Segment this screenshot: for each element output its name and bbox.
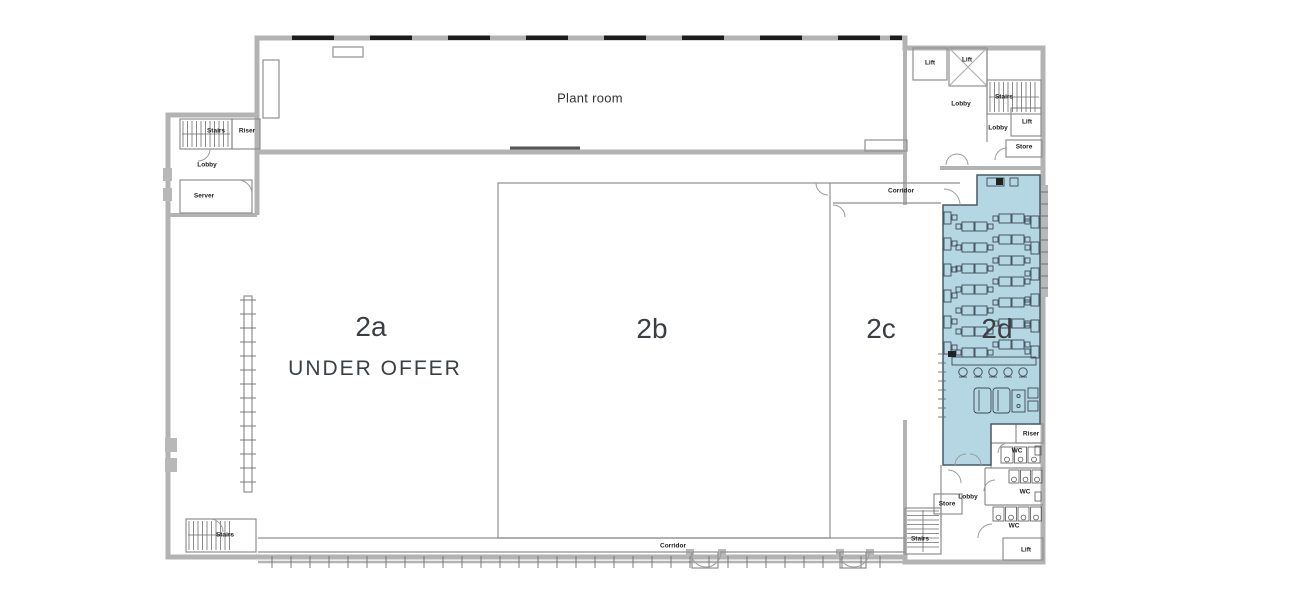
wc-cubicles bbox=[993, 446, 1042, 521]
room-label-stairs: Stairs bbox=[216, 532, 234, 539]
zone-label-2b[interactable]: 2b bbox=[636, 313, 667, 345]
room-label-lift: Lift bbox=[962, 57, 972, 64]
room-label-wc: WC bbox=[1020, 489, 1031, 496]
room-label-lobby: Lobby bbox=[958, 494, 978, 501]
floorplan-page: 2aUNDER OFFER2b2c2dStairsRiserLobbyServe… bbox=[0, 0, 1300, 600]
suite-2b-outline bbox=[498, 183, 830, 538]
room-label-riser: Riser bbox=[1023, 431, 1039, 438]
zone-label-2c[interactable]: 2c bbox=[866, 313, 896, 345]
room-label-store: Store bbox=[1016, 144, 1033, 151]
room-label-lift: Lift bbox=[1021, 547, 1031, 554]
room-label-lift: Lift bbox=[925, 60, 935, 67]
room-label-wc: WC bbox=[1009, 523, 1020, 530]
lift2-cross bbox=[949, 48, 987, 86]
zone-sublabel-2a: UNDER OFFER bbox=[288, 357, 462, 381]
window-strip-2a bbox=[244, 296, 252, 492]
room-label-store: Store bbox=[939, 501, 956, 508]
room-label-stairs: Stairs bbox=[911, 536, 929, 543]
room-label-stairs: Stairs bbox=[207, 128, 225, 135]
floorplan-canvas bbox=[0, 0, 1300, 600]
server-room bbox=[180, 180, 252, 213]
zone-label-2d[interactable]: 2d bbox=[981, 313, 1012, 345]
room-label-lobby: Lobby bbox=[951, 101, 971, 108]
corridor-bottom-walls bbox=[258, 538, 905, 552]
room-label-lobby: Lobby bbox=[197, 162, 217, 169]
room-label-corridor: Corridor bbox=[888, 188, 914, 195]
room-label-stairs: Stairs bbox=[995, 94, 1013, 101]
room-label-lift: Lift bbox=[1022, 119, 1032, 126]
interior-walls bbox=[180, 47, 1043, 568]
room-label-server: Server bbox=[194, 193, 214, 200]
room-label-lobby: Lobby bbox=[988, 125, 1008, 132]
room-label-riser: Riser bbox=[239, 128, 255, 135]
zone-label-2a[interactable]: 2a bbox=[355, 311, 386, 343]
building-outline bbox=[168, 38, 1043, 562]
room-label-corridor: Corridor bbox=[660, 543, 686, 550]
room-label-wc: WC bbox=[1012, 448, 1023, 455]
room-label-plant-room: Plant room bbox=[557, 91, 623, 106]
exterior-walls bbox=[168, 38, 1043, 562]
